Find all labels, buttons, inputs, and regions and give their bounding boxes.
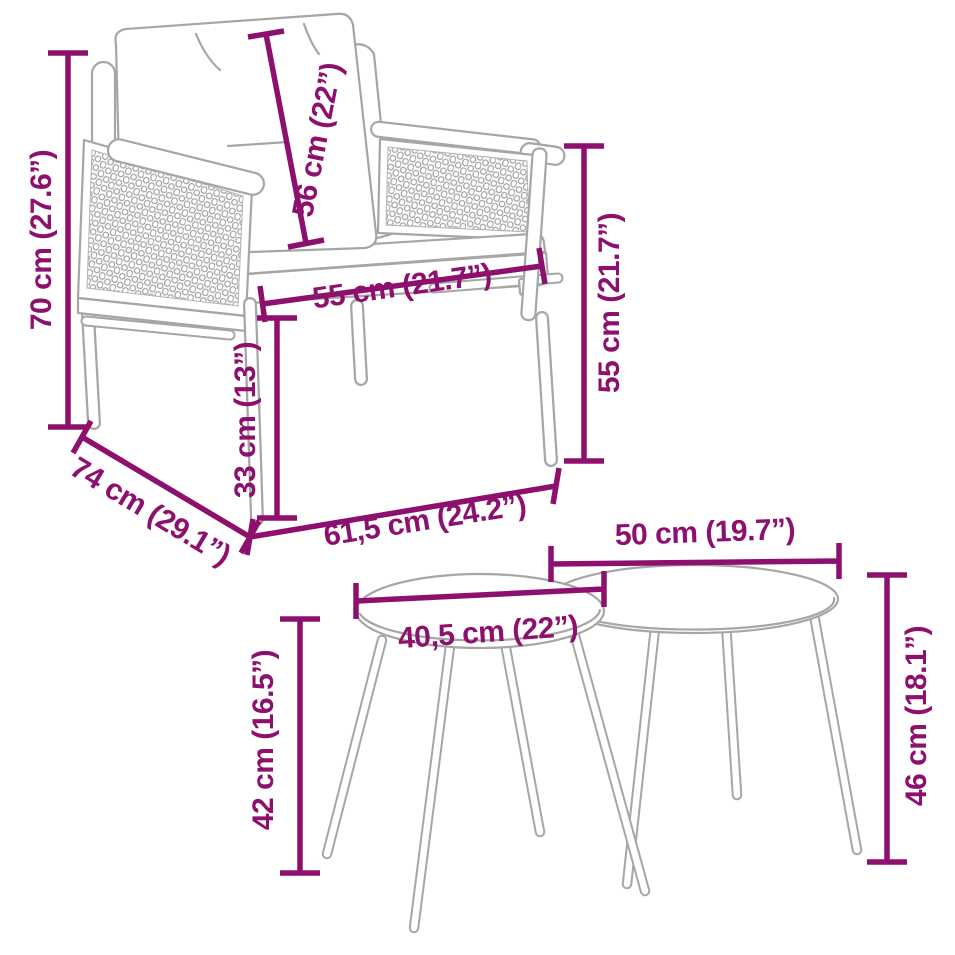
chair-back-height-label: 55 cm (21.7”)	[595, 213, 625, 393]
chair-height-label: 70 cm (27.6”)	[27, 150, 57, 330]
chair-leg-height-label: 33 cm (13”)	[231, 342, 261, 498]
dim-small-table-height	[280, 619, 320, 873]
large-table-legs	[627, 604, 857, 884]
dimension-diagram: 70 cm (27.6”) 56 cm (22”) 55 cm (21.7”) …	[0, 0, 955, 955]
large-table-height-label: 46 cm (18.1”)	[902, 626, 932, 806]
diagram-canvas	[0, 0, 955, 955]
dim-chair-leg-height	[257, 318, 297, 518]
chair-right-panel-weave	[386, 147, 529, 232]
large-table-diameter-label: 50 cm (19.7”)	[614, 515, 795, 551]
small-table-height-label: 42 cm (16.5”)	[249, 650, 279, 830]
small-table-legs	[327, 636, 645, 928]
